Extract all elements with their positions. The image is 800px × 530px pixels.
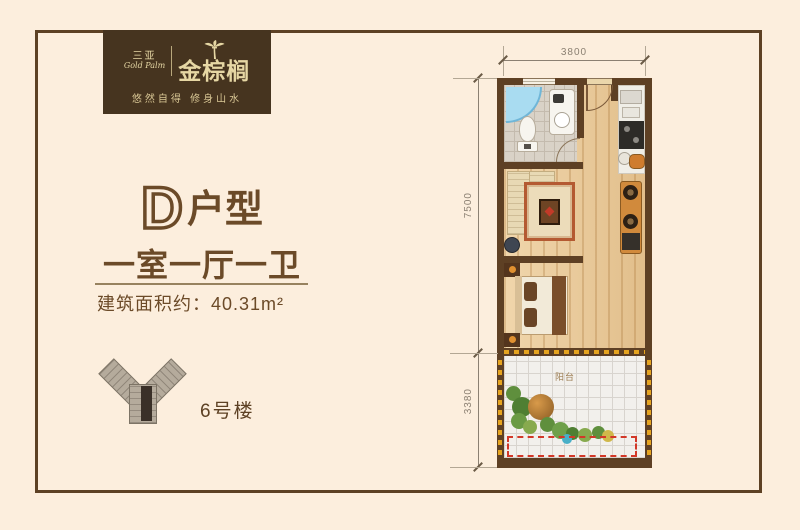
wall-top-2 [555,78,587,85]
tv-set [622,233,640,250]
dimension-value-left-upper: 7500 [463,192,474,218]
lamp [509,266,516,273]
logo-divider [171,46,172,76]
wall-left [497,78,504,356]
dimension-line-top [503,60,645,61]
logo-brand-name: 金棕榈 [178,60,250,83]
area-text: 建筑面积约：40.31m² [97,290,284,316]
wall-bedroom-divider [497,256,583,263]
dimension-value-left-lower: 3380 [463,388,474,414]
window-mullion [523,81,555,82]
dimension-value-top: 3800 [503,47,645,58]
extension-line [453,78,497,79]
wall-right [645,78,652,356]
extension-line [450,353,498,354]
palm-tree-icon [203,40,225,60]
extension-line [450,467,497,468]
wash-basin [554,112,570,128]
building-label: 6号楼 [200,396,255,423]
logo-tagline: 悠然自得 修身山水 [132,90,242,105]
planter-pot [528,394,554,420]
balcony-window-left [498,360,502,455]
wall-bathroom-bottom [497,162,583,169]
speaker [623,185,638,200]
kitchen-appliance [622,107,640,118]
plant [523,420,537,434]
balcony-window-right [647,360,651,455]
kitchen-sink [620,90,642,104]
entry-door-opening [587,78,612,85]
side-table [504,237,520,253]
unit-letter: D [141,181,183,236]
wall-bottom [497,458,652,468]
pillow [524,282,537,301]
logo-brand-cluster: 金棕榈 [178,40,250,83]
dimension-line-left [478,78,479,467]
logo-city-block: 三亚 Gold Palm [124,51,165,71]
siteplan-highlight [141,386,152,421]
pillow [524,308,537,327]
area-label: 建筑面积约： [97,294,211,314]
unit-layout: 一室一厅一卫 [92,240,312,286]
cooktop [619,121,644,149]
separator-line [95,283,308,285]
building-siteplan-icon [96,356,188,428]
vanity-accessory [553,94,564,103]
kitchen-stool [629,154,645,169]
toilet-flush [524,144,531,149]
brand-logo: 三亚 Gold Palm 金棕榈 悠然自得 修身山水 [103,30,271,114]
cooktop-burner [633,137,639,143]
poster-canvas: 三亚 Gold Palm 金棕榈 悠然自得 修身山水 D 户型 一室一厅一卫 建… [0,0,800,530]
entry-door-leaf [586,85,588,111]
cooktop-burner [624,126,630,132]
logo-city-en: Gold Palm [124,62,165,71]
logo-row: 三亚 Gold Palm 金棕榈 [124,40,250,83]
balcony-window-top [504,350,645,354]
speaker [623,214,638,229]
wall-bathroom-side [577,85,584,138]
unit-title: D 户型 [92,178,312,236]
balcony-label: 阳台 [548,370,582,383]
lamp [509,336,516,343]
balcony-open-edge [507,436,637,457]
bed-runner [552,276,566,335]
toilet-bowl [519,116,536,142]
area-value: 40.31m² [211,294,284,314]
unit-suffix: 户型 [187,178,263,233]
bed-headboard [515,276,522,335]
